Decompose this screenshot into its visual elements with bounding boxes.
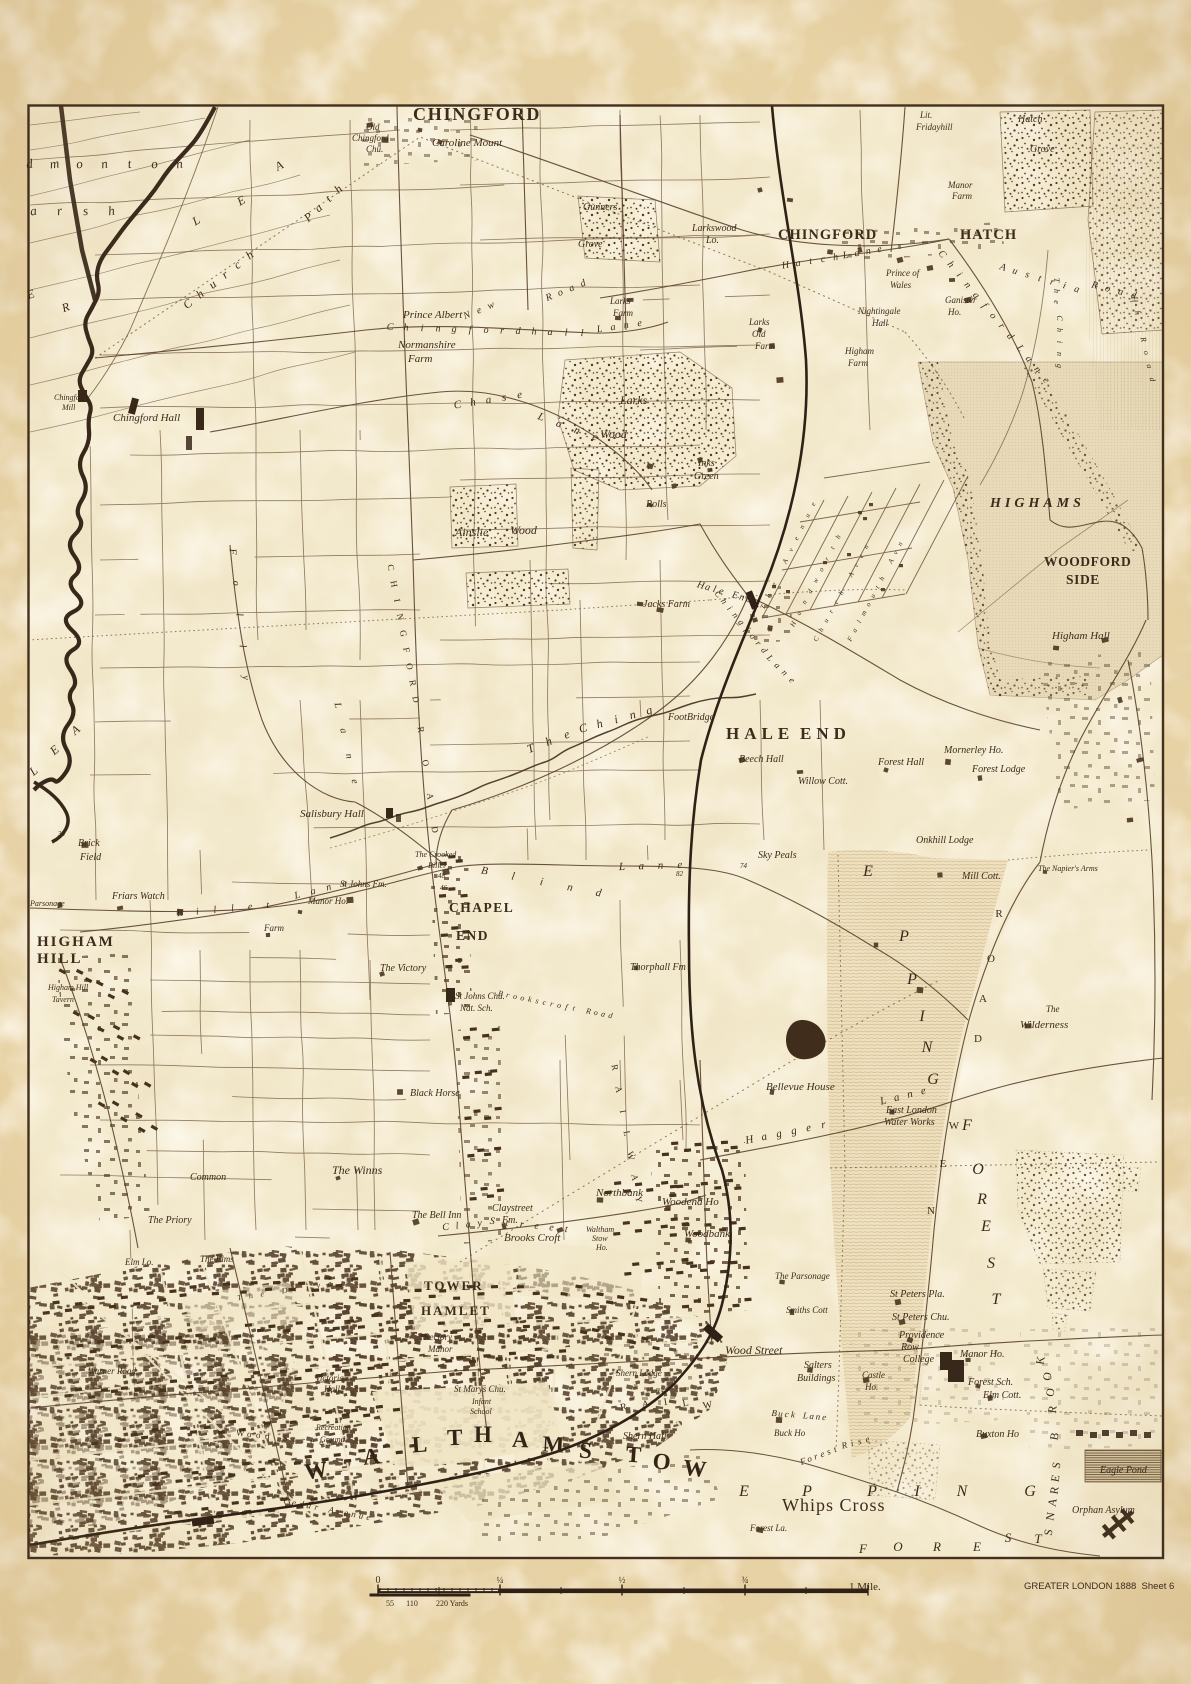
svg-text:c: c — [784, 1409, 789, 1419]
svg-text:Green: Green — [694, 471, 719, 482]
svg-text:Ground: Ground — [320, 1435, 346, 1444]
svg-text:o: o — [483, 325, 488, 336]
svg-text:Ganister: Ganister — [945, 295, 977, 305]
svg-text:Brooks Croft: Brooks Croft — [504, 1232, 561, 1244]
svg-text:Eagle Pond: Eagle Pond — [1099, 1465, 1148, 1476]
svg-text:HALE: HALE — [726, 724, 794, 743]
svg-text:Nightingale: Nightingale — [857, 306, 901, 316]
svg-text:W: W — [236, 1428, 246, 1439]
svg-text:Salisbury Hall: Salisbury Hall — [300, 808, 364, 820]
svg-text:G: G — [1024, 1483, 1036, 1500]
svg-text:Ho.: Ho. — [864, 1382, 878, 1392]
svg-text:W: W — [303, 1457, 329, 1485]
svg-text:The Parsonage: The Parsonage — [775, 1271, 830, 1281]
svg-text:Claystreet: Claystreet — [492, 1203, 533, 1214]
svg-text:Mill Cott.: Mill Cott. — [961, 871, 1001, 882]
svg-text:St Johns Fm.: St Johns Fm. — [340, 879, 387, 889]
svg-text:East London: East London — [885, 1105, 937, 1116]
svg-text:W: W — [682, 1455, 707, 1482]
svg-text:E: E — [862, 863, 873, 880]
svg-text:HIGHAMS: HIGHAMS — [989, 496, 1085, 511]
svg-text:Caroline Mount: Caroline Mount — [432, 137, 503, 149]
svg-text:END: END — [800, 724, 851, 743]
svg-text:82: 82 — [676, 870, 684, 878]
svg-text:46: 46 — [440, 884, 448, 892]
svg-text:55: 55 — [386, 1599, 394, 1608]
svg-text:Ho.: Ho. — [595, 1243, 608, 1252]
svg-text:Rolls: Rolls — [645, 499, 667, 510]
svg-text:Larks: Larks — [619, 393, 648, 407]
svg-text:Ho.: Ho. — [947, 307, 961, 317]
svg-text:The Bell Inn: The Bell Inn — [412, 1210, 461, 1221]
svg-text:Recreation: Recreation — [315, 1423, 351, 1432]
svg-text:e: e — [822, 1412, 827, 1422]
svg-text:n: n — [658, 860, 664, 872]
svg-text:Farm: Farm — [951, 191, 973, 201]
svg-text:CHINGFORD: CHINGFORD — [778, 227, 877, 243]
svg-text:Larks: Larks — [748, 317, 770, 327]
svg-text:HATCH: HATCH — [960, 227, 1017, 243]
svg-text:A: A — [979, 993, 987, 1005]
svg-text:Black Horse: Black Horse — [410, 1088, 460, 1099]
svg-text:Onkhill Lodge: Onkhill Lodge — [916, 835, 974, 846]
svg-text:Bellevue House: Bellevue House — [766, 1081, 835, 1093]
svg-text:Chingford: Chingford — [54, 393, 88, 402]
svg-text:Nat. Sch.: Nat. Sch. — [459, 1003, 493, 1013]
svg-text:Rectory: Rectory — [423, 1332, 452, 1342]
svg-text:Farm: Farm — [754, 341, 776, 351]
svg-text:Castle: Castle — [862, 1370, 885, 1380]
svg-text:The: The — [1046, 1004, 1060, 1014]
svg-text:48: 48 — [438, 872, 446, 880]
svg-text:h: h — [531, 326, 536, 337]
svg-text:St Johns Chu.: St Johns Chu. — [455, 991, 505, 1001]
svg-text:220 Yards: 220 Yards — [436, 1599, 468, 1608]
svg-text:Wood Street: Wood Street — [725, 1343, 783, 1357]
svg-text:S: S — [1005, 1530, 1012, 1545]
svg-text:College: College — [903, 1354, 935, 1365]
svg-text:Chingford Hall: Chingford Hall — [113, 412, 180, 424]
svg-text:I: I — [918, 1008, 925, 1025]
svg-text:Forest La.: Forest La. — [749, 1523, 787, 1533]
svg-text:Forest Hall: Forest Hall — [877, 757, 924, 768]
svg-text:Field: Field — [79, 852, 102, 863]
svg-text:GREATER LONDON 1888 Sheet 6: GREATER LONDON 1888 Sheet 6 — [1024, 1581, 1174, 1592]
svg-text:Sky Peals: Sky Peals — [758, 850, 797, 861]
svg-text:G: G — [927, 1071, 939, 1088]
svg-text:Shern Hall: Shern Hall — [623, 1431, 667, 1442]
svg-text:Prince of: Prince of — [885, 268, 921, 278]
svg-text:g: g — [451, 324, 456, 335]
svg-text:Farm: Farm — [847, 358, 869, 368]
svg-text:Old: Old — [752, 329, 766, 339]
svg-text:Chingford: Chingford — [352, 133, 389, 143]
svg-text:Prince Albert: Prince Albert — [402, 309, 463, 321]
svg-text:Wales: Wales — [890, 280, 912, 290]
svg-text:Victoria: Victoria — [315, 1373, 344, 1383]
svg-text:Normanshire: Normanshire — [397, 339, 456, 351]
svg-text:Warner Road: Warner Road — [88, 1366, 136, 1376]
svg-text:r: r — [500, 325, 504, 336]
svg-text:Mornerley Ho.: Mornerley Ho. — [943, 745, 1003, 756]
svg-text:Woodend Ho: Woodend Ho — [662, 1196, 719, 1208]
svg-text:Water Works: Water Works — [884, 1117, 935, 1128]
svg-text:C: C — [1055, 315, 1064, 321]
svg-text:Woodbank: Woodbank — [684, 1228, 731, 1240]
svg-text:Larkswood: Larkswood — [691, 223, 737, 234]
svg-text:O: O — [972, 1161, 984, 1178]
svg-text:St Peters Chu.: St Peters Chu. — [892, 1312, 950, 1323]
svg-text:Waltham: Waltham — [586, 1225, 614, 1234]
svg-text:Orphan Asylum: Orphan Asylum — [1072, 1505, 1135, 1516]
svg-text:T: T — [625, 1442, 642, 1468]
svg-text:Row: Row — [900, 1342, 919, 1353]
svg-text:Grove: Grove — [1030, 144, 1055, 155]
svg-text:T: T — [1034, 1531, 1042, 1546]
svg-text:T: T — [1052, 278, 1061, 283]
svg-text:P: P — [866, 1483, 877, 1500]
svg-text:i: i — [1055, 341, 1064, 343]
svg-text:Chu.: Chu. — [366, 144, 383, 154]
svg-text:L: L — [411, 1432, 428, 1458]
svg-text:Larks: Larks — [609, 296, 631, 306]
svg-text:Elm Cott.: Elm Cott. — [982, 1390, 1021, 1401]
svg-text:R: R — [932, 1539, 941, 1554]
svg-text:R: R — [976, 1191, 987, 1208]
svg-text:St Marys Chu.: St Marys Chu. — [454, 1384, 506, 1394]
svg-text:St Peters Pla.: St Peters Pla. — [890, 1289, 945, 1300]
svg-text:Manor Ho.: Manor Ho. — [307, 896, 348, 906]
svg-text:Hall: Hall — [323, 1384, 341, 1394]
svg-text:a: a — [547, 327, 552, 338]
svg-text:Lo.: Lo. — [705, 235, 719, 246]
svg-text:Providence: Providence — [898, 1330, 945, 1341]
svg-text:M: M — [542, 1431, 565, 1457]
svg-text:Stow: Stow — [592, 1234, 608, 1243]
svg-text:L: L — [618, 861, 626, 873]
svg-text:The Crooked: The Crooked — [415, 850, 457, 859]
svg-text:H: H — [474, 1422, 492, 1447]
svg-text:g: g — [1055, 364, 1064, 368]
svg-text:N: N — [921, 1039, 934, 1056]
svg-text:The Winns: The Winns — [332, 1163, 383, 1177]
svg-text:Smiths Cott: Smiths Cott — [786, 1305, 828, 1315]
svg-text:E: E — [940, 1158, 947, 1170]
svg-text:Wood: Wood — [510, 523, 538, 537]
svg-text:CHAPEL: CHAPEL — [449, 900, 514, 915]
svg-text:Forest Sch.: Forest Sch. — [967, 1377, 1013, 1388]
svg-text:Thorphall Fm: Thorphall Fm — [630, 962, 686, 973]
svg-text:Buildings: Buildings — [797, 1373, 835, 1384]
svg-text:Elm Lo.: Elm Lo. — [124, 1257, 154, 1267]
svg-text:Higham Hall: Higham Hall — [1051, 630, 1110, 642]
svg-text:Buxton Ho: Buxton Ho — [976, 1429, 1019, 1440]
svg-text:END: END — [456, 928, 489, 943]
svg-text:Shern Lodge: Shern Lodge — [616, 1368, 662, 1378]
svg-text:HILL: HILL — [37, 951, 83, 967]
svg-text:E: E — [738, 1483, 749, 1500]
svg-text:E: E — [980, 1218, 991, 1235]
svg-text:R: R — [995, 908, 1003, 920]
svg-text:The Elms: The Elms — [200, 1254, 234, 1264]
svg-text:Farm: Farm — [263, 923, 285, 933]
svg-text:P: P — [898, 928, 909, 945]
svg-text:Higham: Higham — [844, 346, 875, 356]
svg-text:h: h — [1052, 289, 1061, 293]
svg-text:Brick: Brick — [78, 838, 100, 849]
svg-text:A: A — [362, 1443, 382, 1470]
svg-text:h: h — [403, 322, 408, 333]
svg-text:Fm.: Fm. — [501, 1215, 518, 1226]
svg-text:Infant: Infant — [471, 1397, 492, 1406]
svg-text:T: T — [992, 1291, 1002, 1308]
svg-text:Gunners: Gunners — [583, 202, 618, 213]
svg-text:O: O — [652, 1448, 672, 1474]
svg-text:Forest Lodge: Forest Lodge — [971, 764, 1026, 775]
svg-text:Grove: Grove — [578, 239, 603, 250]
svg-text:School: School — [470, 1407, 493, 1416]
svg-text:The Victory: The Victory — [380, 963, 427, 974]
svg-text:Salters: Salters — [804, 1360, 832, 1371]
svg-text:n: n — [435, 323, 440, 334]
svg-text:CHINGFORD: CHINGFORD — [413, 104, 541, 124]
svg-text:110: 110 — [406, 1599, 418, 1608]
svg-text:33: 33 — [57, 830, 66, 838]
svg-text:Beech Hall: Beech Hall — [739, 754, 784, 765]
svg-text:O: O — [893, 1539, 903, 1554]
svg-text:TOWER: TOWER — [424, 1278, 484, 1293]
svg-text:W: W — [949, 1120, 960, 1132]
svg-text:S: S — [987, 1255, 995, 1272]
svg-text:Lit.: Lit. — [919, 110, 932, 120]
svg-text:Manor: Manor — [947, 180, 973, 190]
svg-text:Farm: Farm — [612, 308, 634, 318]
svg-text:T: T — [447, 1425, 463, 1451]
svg-text:Friars Watch: Friars Watch — [111, 891, 165, 902]
svg-text:½: ½ — [619, 1575, 626, 1585]
svg-text:h: h — [1055, 328, 1064, 332]
svg-text:Farm: Farm — [407, 353, 433, 365]
svg-text:Inks: Inks — [697, 458, 715, 469]
svg-text:D: D — [974, 1033, 982, 1045]
svg-text:a: a — [638, 860, 644, 872]
svg-text:Common: Common — [190, 1172, 226, 1183]
svg-text:P: P — [906, 971, 917, 988]
svg-text:SIDE: SIDE — [1066, 572, 1100, 587]
svg-text:Willow Cott.: Willow Cott. — [798, 776, 848, 787]
svg-text:The Napier's Arms: The Napier's Arms — [1038, 864, 1098, 873]
svg-text:Wood: Wood — [600, 427, 628, 441]
svg-text:F: F — [961, 1117, 972, 1134]
svg-text:The Priory: The Priory — [148, 1215, 192, 1226]
svg-text:¼: ¼ — [497, 1575, 504, 1585]
svg-text:¾: ¾ — [742, 1575, 749, 1585]
svg-text:P: P — [801, 1483, 812, 1500]
svg-text:HAMLET: HAMLET — [421, 1303, 491, 1318]
svg-text:N: N — [956, 1483, 969, 1500]
svg-text:Higham Hill: Higham Hill — [47, 983, 89, 992]
svg-text:Old: Old — [366, 122, 380, 132]
svg-text:C: C — [387, 322, 394, 333]
svg-text:Wilderness: Wilderness — [1020, 1019, 1068, 1031]
svg-text:WOODFORD: WOODFORD — [1044, 554, 1131, 569]
svg-text:I: I — [913, 1483, 920, 1500]
svg-text:0: 0 — [376, 1575, 381, 1586]
svg-text:L: L — [802, 1410, 809, 1420]
svg-text:Billet: Billet — [428, 861, 446, 870]
svg-text:Hatch: Hatch — [1017, 114, 1042, 125]
svg-text:Parsonage: Parsonage — [29, 899, 65, 908]
svg-text:1 Mile.: 1 Mile. — [849, 1581, 881, 1593]
svg-text:Fridayhill: Fridayhill — [915, 122, 953, 132]
svg-text:Tavern: Tavern — [52, 995, 74, 1004]
svg-text:B: B — [176, 908, 183, 920]
svg-text:Mill: Mill — [61, 403, 76, 412]
svg-text:Manor: Manor — [427, 1344, 453, 1354]
svg-text:A: A — [512, 1427, 530, 1453]
svg-text:Northbank: Northbank — [595, 1187, 644, 1199]
svg-text:n: n — [1055, 352, 1064, 356]
svg-text:S: S — [578, 1438, 593, 1464]
svg-text:Ainslie: Ainslie — [454, 525, 489, 539]
svg-text:Jacks Farm: Jacks Farm — [643, 599, 690, 610]
svg-text:74: 74 — [740, 862, 748, 870]
svg-text:O: O — [987, 953, 995, 965]
svg-text:FootBridge: FootBridge — [667, 712, 715, 723]
svg-text:E: E — [972, 1539, 981, 1554]
svg-text:N: N — [927, 1205, 935, 1217]
svg-text:Buck Ho: Buck Ho — [774, 1428, 806, 1438]
svg-text:F: F — [858, 1541, 868, 1556]
svg-text:Hall: Hall — [871, 318, 889, 328]
svg-text:HIGHAM: HIGHAM — [37, 934, 115, 950]
svg-text:Manor Ho.: Manor Ho. — [959, 1349, 1004, 1360]
svg-text:e: e — [1052, 300, 1061, 304]
